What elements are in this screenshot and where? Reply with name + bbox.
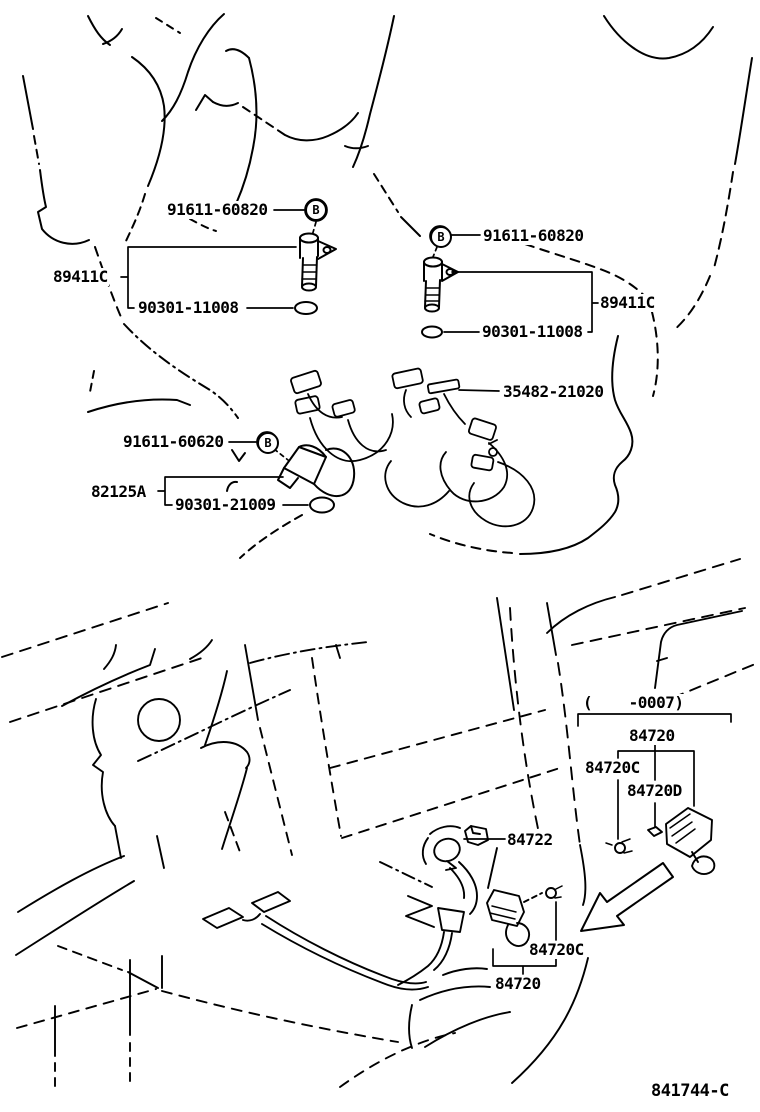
part-label-cam-bolt-right[interactable]: 91611-60820	[482, 227, 584, 245]
part-label-cam-bolt-left[interactable]: 91611-60820	[166, 201, 268, 219]
parts-diagram-page: 91611-60820 B 89411C 90301-11008 B 91611…	[0, 0, 760, 1112]
part-label-oring-left[interactable]: 90301-11008	[137, 299, 239, 317]
bolt-marker-right: B	[430, 226, 452, 248]
part-label-cam-sensor-left[interactable]: 89411C	[52, 268, 109, 286]
figure-code: 841744-C	[651, 1081, 729, 1101]
part-label-oring-right[interactable]: 90301-11008	[481, 323, 583, 341]
pointer-arrow	[581, 863, 673, 931]
part-label-knock-bolt[interactable]: 91611-60620	[122, 433, 224, 451]
camshaft-sensor-left-drawing	[300, 234, 336, 291]
part-label-switch-screw[interactable]: 84720C	[528, 941, 585, 959]
shift-lever-drawing	[398, 826, 488, 985]
od-switch-drawing	[487, 886, 562, 946]
part-label-switch[interactable]: 84720	[494, 975, 542, 993]
bolt-marker-knock: B	[257, 432, 279, 454]
part-label-knock-oring[interactable]: 90301-21009	[174, 496, 276, 514]
knock-sensor-drawing	[278, 445, 354, 496]
oring-right-drawing	[422, 327, 442, 338]
camshaft-sensor-right-drawing	[424, 258, 458, 312]
engine-outline	[23, 14, 752, 558]
part-label-knock-sensor[interactable]: 82125A	[90, 483, 147, 501]
part-label-switch-early[interactable]: 84720	[628, 727, 676, 745]
part-label-switch-screw-early[interactable]: 84720C	[584, 759, 641, 777]
diagram-line-art	[0, 0, 760, 1112]
oring-knock-drawing	[310, 498, 334, 513]
part-label-switch-grommet[interactable]: 84720D	[626, 782, 683, 800]
bolt-marker-left: B	[305, 199, 327, 221]
shift-cable-drawing	[203, 892, 428, 989]
callout-leaders-bottom	[464, 714, 731, 974]
production-range-note: ( -0007)	[582, 694, 684, 712]
part-label-harness[interactable]: 35482-21020	[502, 383, 604, 401]
part-label-cam-sensor-right[interactable]: 89411C	[599, 294, 656, 312]
oring-left-drawing	[295, 302, 317, 314]
part-label-shift-lever[interactable]: 84722	[506, 831, 554, 849]
dashboard-outline	[2, 559, 760, 1087]
